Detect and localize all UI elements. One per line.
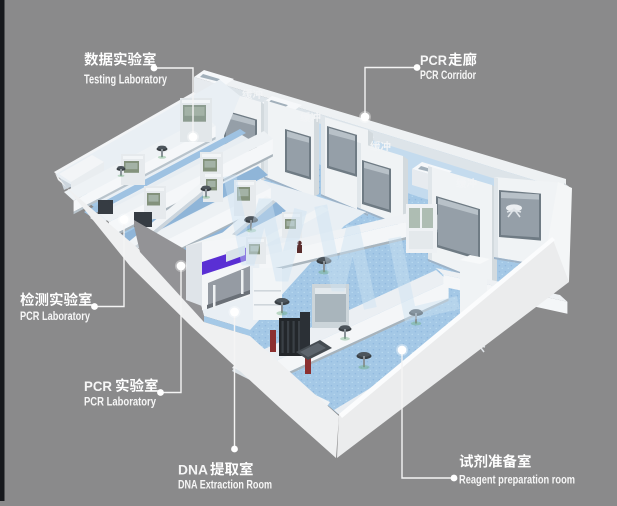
svg-text:PCR: PCR xyxy=(84,378,112,394)
svg-text:PCR Laboratory: PCR Laboratory xyxy=(20,311,90,323)
svg-text:Testing Laboratory: Testing Laboratory xyxy=(84,73,167,87)
svg-text:PCR Laboratory: PCR Laboratory xyxy=(84,397,156,409)
svg-text:DNA Extraction Room: DNA Extraction Room xyxy=(178,480,272,492)
svg-text:PCR: PCR xyxy=(420,52,447,68)
svg-text:DNA: DNA xyxy=(178,462,208,478)
svg-text:PCR Corridor: PCR Corridor xyxy=(420,70,476,82)
svg-text:Reagent preparation room: Reagent preparation room xyxy=(459,475,575,487)
